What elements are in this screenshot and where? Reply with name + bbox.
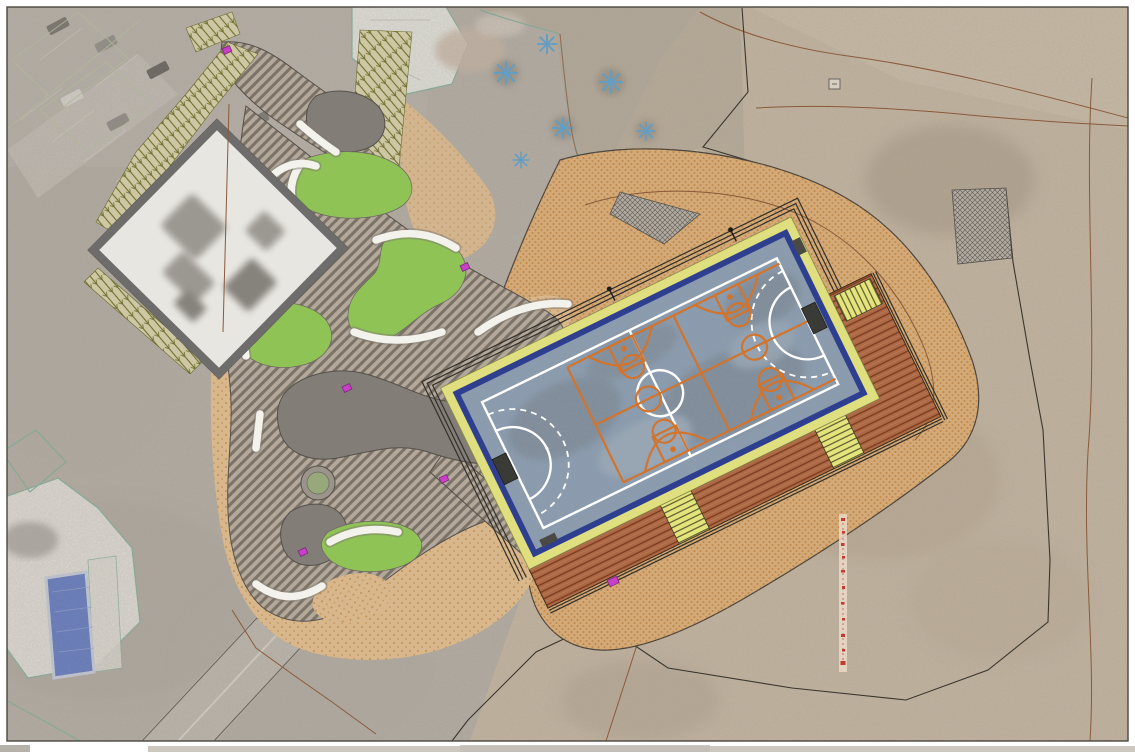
tree-planter [301, 466, 335, 500]
survey-tick-line [839, 514, 847, 672]
edge-artifact [0, 745, 1135, 752]
site-plan-svg [0, 0, 1135, 752]
crosshatch-patch [952, 188, 1012, 264]
plan-label-box [829, 79, 840, 89]
site-plan-page [0, 0, 1135, 752]
